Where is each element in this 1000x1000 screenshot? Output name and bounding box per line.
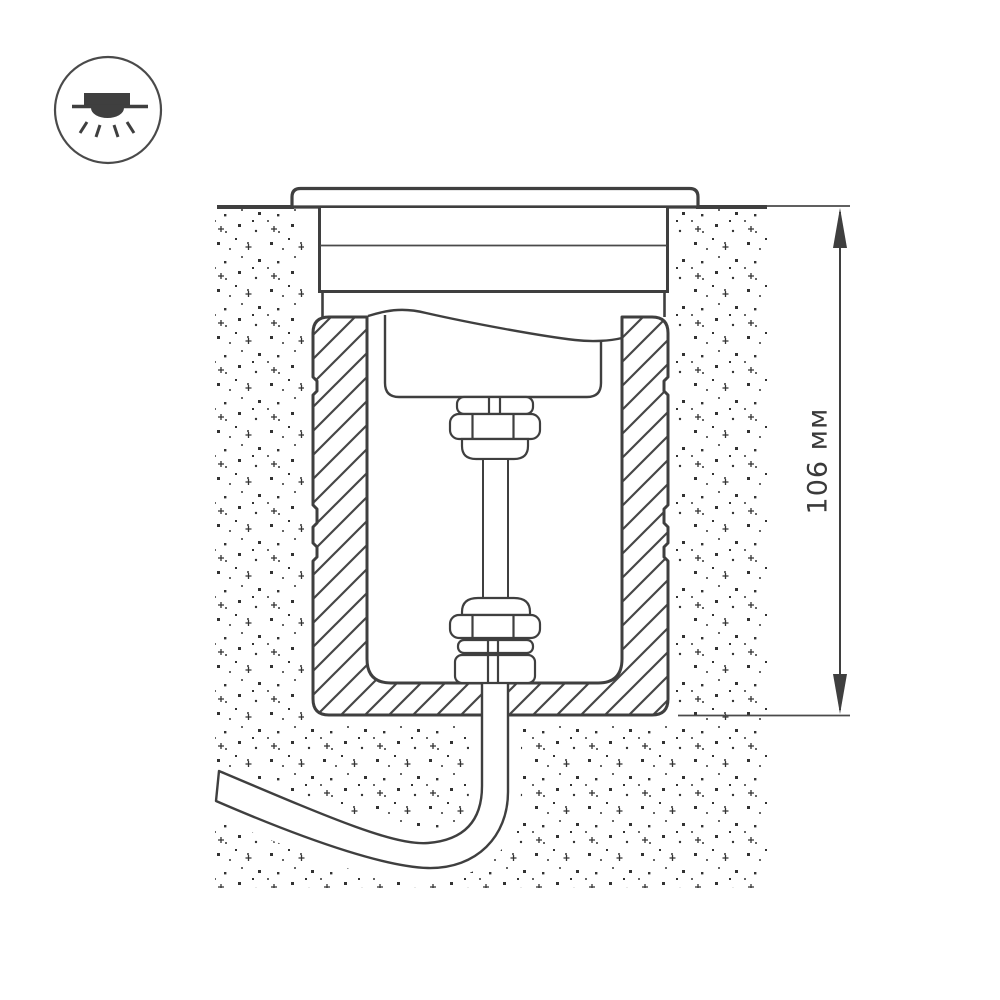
internal-cable	[483, 459, 508, 600]
gland-bottom-base	[455, 655, 535, 683]
icon-fixture-body	[84, 93, 130, 106]
gland-top-collar	[462, 439, 528, 459]
cable-gland-top	[450, 397, 540, 459]
gland-top-adapter	[457, 397, 533, 414]
installation-diagram: 106 мм	[0, 0, 1000, 1000]
gland-bottom-collar	[458, 640, 533, 653]
housing-fill	[320, 208, 668, 292]
gland-bottom-nut	[450, 615, 540, 638]
recessed-downlight-icon	[55, 57, 161, 163]
dimension-arrow-up	[833, 208, 847, 248]
dimension-arrow-down	[833, 674, 847, 714]
gland-bottom-dome	[462, 598, 530, 615]
dimension-label: 106 мм	[803, 408, 834, 515]
diagram-canvas: 106 мм	[0, 0, 1000, 1000]
flange	[292, 189, 698, 208]
cable-gland-bottom	[450, 598, 540, 683]
gland-top-nut	[450, 414, 540, 439]
